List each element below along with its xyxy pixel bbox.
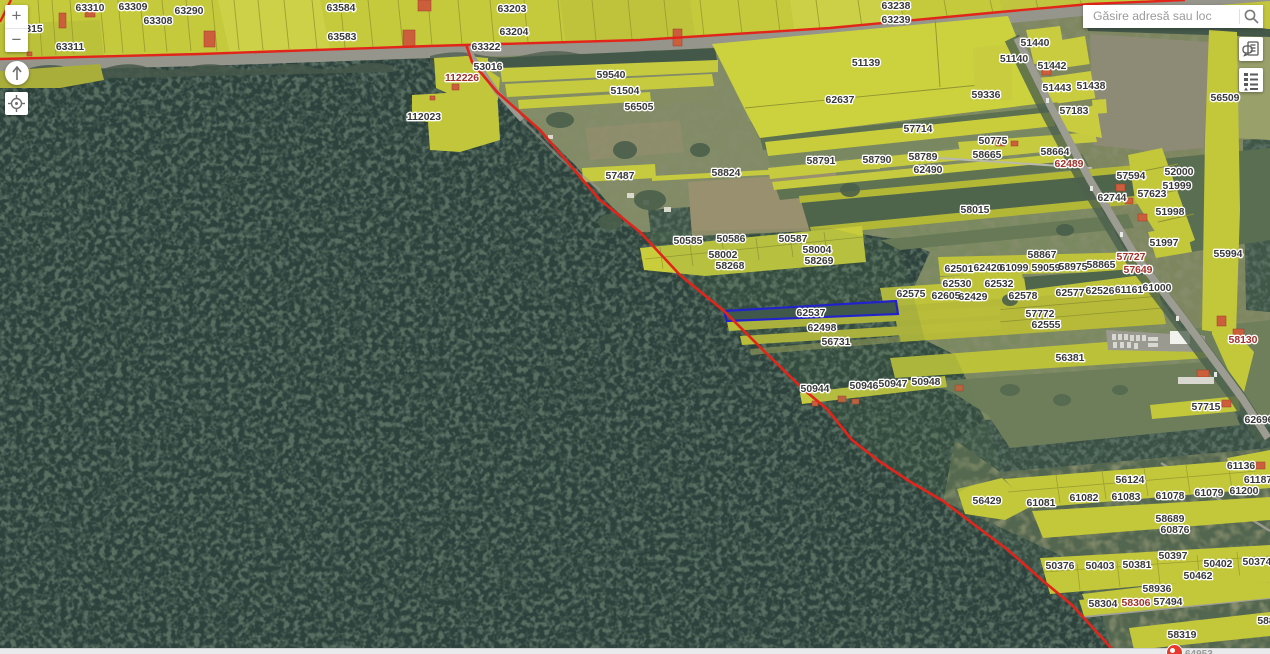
svg-text:588: 588 [1257, 616, 1270, 627]
svg-text:50948: 50948 [912, 377, 941, 388]
svg-text:62637: 62637 [826, 95, 855, 106]
svg-text:62555: 62555 [1032, 320, 1061, 331]
svg-text:58689: 58689 [1156, 514, 1185, 525]
svg-text:50775: 50775 [979, 136, 1008, 147]
svg-text:58002: 58002 [709, 250, 738, 261]
svg-text:58975: 58975 [1059, 262, 1088, 273]
svg-text:50587: 50587 [779, 234, 808, 245]
svg-text:50403: 50403 [1086, 561, 1115, 572]
svg-text:56381: 56381 [1056, 353, 1085, 364]
svg-text:61200: 61200 [1230, 486, 1259, 497]
svg-text:62530: 62530 [943, 279, 972, 290]
svg-text:62696: 62696 [1245, 415, 1270, 426]
svg-text:61000: 61000 [1143, 283, 1172, 294]
svg-text:63309: 63309 [119, 2, 148, 13]
svg-text:51504: 51504 [611, 86, 640, 97]
svg-text:58867: 58867 [1028, 250, 1057, 261]
svg-text:50944: 50944 [801, 384, 830, 395]
svg-text:58790: 58790 [863, 155, 892, 166]
svg-text:51440: 51440 [1021, 38, 1050, 49]
svg-text:63583: 63583 [328, 32, 357, 43]
svg-text:50585: 50585 [674, 236, 703, 247]
svg-text:59336: 59336 [972, 90, 1001, 101]
svg-text:61079: 61079 [1195, 488, 1224, 499]
svg-text:62490: 62490 [914, 165, 943, 176]
svg-text:50397: 50397 [1159, 551, 1188, 562]
svg-text:58789: 58789 [909, 152, 938, 163]
svg-text:61083: 61083 [1112, 492, 1141, 503]
svg-text:51139: 51139 [852, 58, 881, 69]
svg-text:63584: 63584 [327, 3, 356, 14]
svg-text:58665: 58665 [973, 150, 1002, 161]
svg-text:62575: 62575 [897, 289, 926, 300]
svg-text:57715: 57715 [1192, 402, 1221, 413]
svg-text:50402: 50402 [1204, 559, 1233, 570]
svg-text:63238: 63238 [882, 1, 911, 12]
svg-text:57623: 57623 [1138, 189, 1167, 200]
svg-text:63203: 63203 [498, 4, 527, 15]
svg-text:62489: 62489 [1055, 159, 1084, 170]
svg-text:56124: 56124 [1116, 475, 1145, 486]
svg-text:56505: 56505 [625, 102, 654, 113]
svg-text:57594: 57594 [1117, 171, 1146, 182]
svg-text:50462: 50462 [1184, 571, 1213, 582]
svg-text:112023: 112023 [407, 112, 441, 123]
svg-text:61161: 61161 [1115, 285, 1144, 296]
svg-text:62501: 62501 [945, 264, 974, 275]
svg-text:58319: 58319 [1168, 630, 1197, 641]
svg-text:50381: 50381 [1123, 560, 1152, 571]
svg-text:63310: 63310 [76, 3, 105, 14]
svg-text:60876: 60876 [1161, 525, 1190, 536]
svg-text:62532: 62532 [985, 279, 1014, 290]
svg-text:51140: 51140 [1000, 54, 1029, 65]
svg-text:51438: 51438 [1077, 81, 1106, 92]
svg-text:62577: 62577 [1056, 288, 1085, 299]
svg-text:58268: 58268 [716, 261, 745, 272]
svg-text:53016: 53016 [474, 62, 503, 73]
svg-text:58824: 58824 [712, 168, 741, 179]
svg-text:56509: 56509 [1211, 93, 1240, 104]
svg-text:58304: 58304 [1089, 599, 1118, 610]
svg-text:50947: 50947 [879, 379, 908, 390]
svg-text:61099: 61099 [1000, 263, 1029, 274]
svg-text:62526: 62526 [1086, 286, 1115, 297]
svg-text:57494: 57494 [1154, 597, 1183, 608]
svg-text:58791: 58791 [807, 156, 836, 167]
svg-text:62429: 62429 [959, 292, 988, 303]
svg-text:58936: 58936 [1143, 584, 1172, 595]
svg-text:62420: 62420 [974, 263, 1003, 274]
svg-text:51999: 51999 [1163, 181, 1192, 192]
svg-text:61187: 61187 [1244, 475, 1270, 486]
svg-text:62605: 62605 [932, 291, 961, 302]
svg-text:62537: 62537 [797, 308, 826, 319]
svg-text:56429: 56429 [973, 496, 1002, 507]
svg-text:56731: 56731 [822, 337, 851, 348]
svg-text:63239: 63239 [882, 15, 911, 26]
svg-text:51442: 51442 [1038, 61, 1067, 72]
svg-text:62578: 62578 [1009, 291, 1038, 302]
svg-text:58865: 58865 [1087, 260, 1116, 271]
svg-text:61078: 61078 [1156, 491, 1185, 502]
svg-text:51998: 51998 [1156, 207, 1185, 218]
svg-text:59540: 59540 [597, 70, 626, 81]
svg-text:62744: 62744 [1098, 193, 1127, 204]
svg-text:63204: 63204 [500, 27, 529, 38]
svg-text:57714: 57714 [904, 124, 933, 135]
svg-text:63290: 63290 [175, 6, 204, 17]
svg-text:58664: 58664 [1041, 147, 1070, 158]
svg-text:62498: 62498 [808, 323, 837, 334]
svg-text:55994: 55994 [1214, 249, 1243, 260]
svg-text:52000: 52000 [1165, 167, 1194, 178]
svg-text:63308: 63308 [144, 16, 173, 27]
svg-text:57649: 57649 [1124, 265, 1153, 276]
svg-text:50586: 50586 [717, 234, 746, 245]
svg-text:112226: 112226 [445, 73, 479, 84]
svg-text:50374: 50374 [1243, 557, 1270, 568]
svg-text:63322: 63322 [472, 42, 501, 53]
svg-text:50946: 50946 [850, 381, 879, 392]
svg-text:57772: 57772 [1026, 309, 1055, 320]
svg-text:61081: 61081 [1027, 498, 1056, 509]
svg-text:58004: 58004 [803, 245, 832, 256]
svg-text:58015: 58015 [961, 205, 990, 216]
svg-text:51997: 51997 [1150, 238, 1179, 249]
svg-text:59059: 59059 [1032, 263, 1061, 274]
svg-text:61082: 61082 [1070, 493, 1099, 504]
svg-text:58306: 58306 [1122, 598, 1151, 609]
svg-text:57183: 57183 [1060, 106, 1089, 117]
svg-text:57487: 57487 [606, 171, 635, 182]
svg-text:50376: 50376 [1046, 561, 1075, 572]
svg-text:57727: 57727 [1117, 252, 1146, 263]
svg-text:51443: 51443 [1043, 83, 1072, 94]
svg-text:58130: 58130 [1229, 335, 1258, 346]
svg-text:61136: 61136 [1227, 461, 1256, 472]
svg-text:63311: 63311 [56, 42, 85, 53]
svg-text:58269: 58269 [805, 256, 834, 267]
